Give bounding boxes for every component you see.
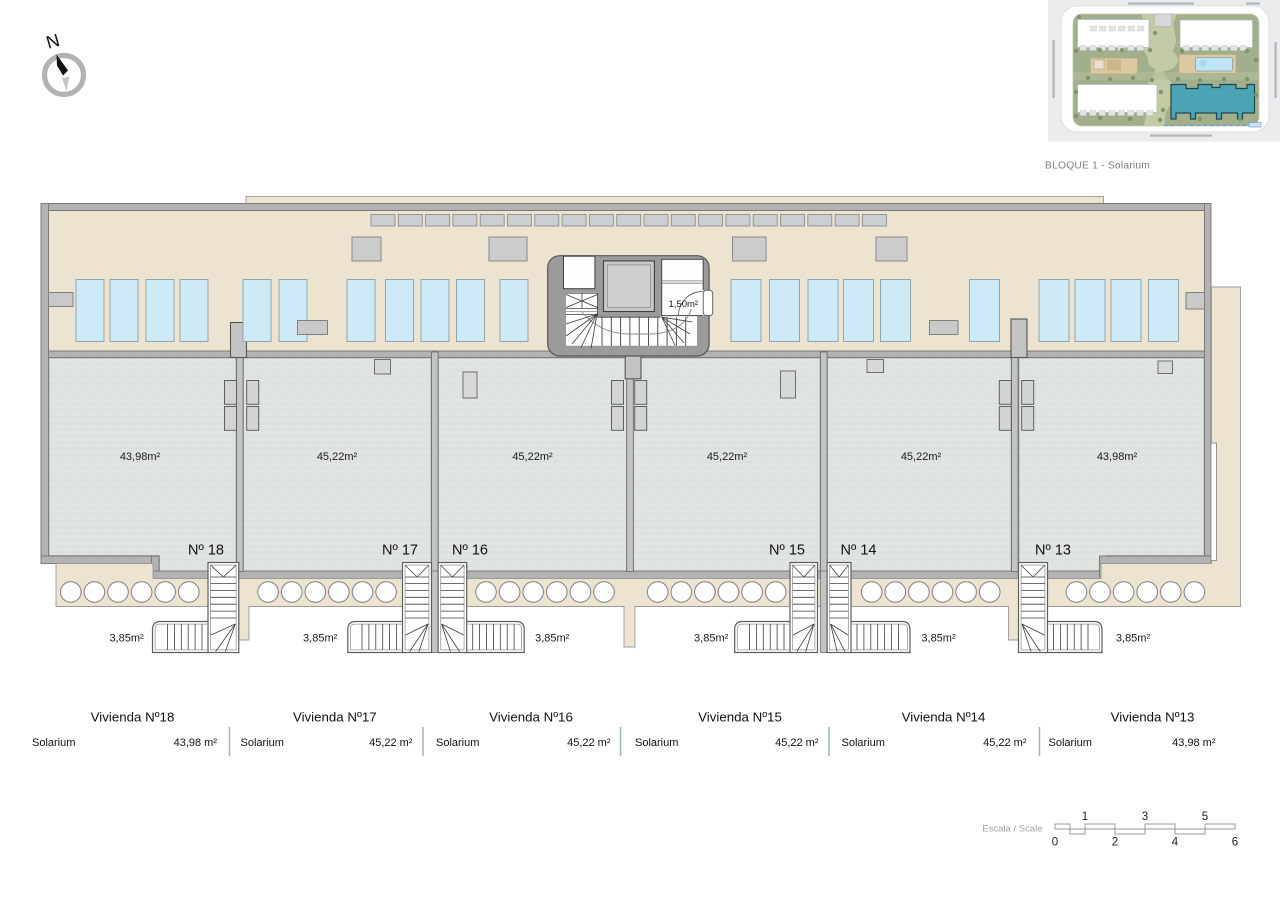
svg-text:6: 6 <box>1232 837 1238 849</box>
svg-text:Nº 18: Nº 18 <box>188 543 224 559</box>
svg-text:Solarium: Solarium <box>32 737 75 749</box>
svg-text:Solarium: Solarium <box>842 737 885 749</box>
svg-text:Nº 16: Nº 16 <box>452 543 488 559</box>
svg-text:Vivienda Nº16: Vivienda Nº16 <box>489 710 573 725</box>
svg-text:45,22m²: 45,22m² <box>317 451 358 463</box>
svg-text:Vivienda Nº18: Vivienda Nº18 <box>91 710 175 725</box>
svg-text:45,22 m²: 45,22 m² <box>983 737 1027 749</box>
svg-text:45,22 m²: 45,22 m² <box>775 737 819 749</box>
svg-text:3,85m²: 3,85m² <box>694 633 729 645</box>
svg-text:BLOQUE 1 - Solarium: BLOQUE 1 - Solarium <box>1045 161 1150 172</box>
svg-text:3,85m²: 3,85m² <box>1116 633 1151 645</box>
svg-text:43,98m²: 43,98m² <box>1097 451 1138 463</box>
svg-text:45,22 m²: 45,22 m² <box>369 737 413 749</box>
svg-text:3,85m²: 3,85m² <box>109 633 144 645</box>
svg-text:4: 4 <box>1172 837 1179 849</box>
svg-text:3: 3 <box>1142 811 1148 823</box>
svg-text:45,22m²: 45,22m² <box>512 451 553 463</box>
svg-text:Nº 13: Nº 13 <box>1035 543 1071 559</box>
svg-text:1,50m²: 1,50m² <box>669 299 699 310</box>
svg-text:Solarium: Solarium <box>241 737 284 749</box>
svg-text:43,98 m²: 43,98 m² <box>1172 737 1216 749</box>
svg-text:5: 5 <box>1202 811 1208 823</box>
svg-text:Nº 15: Nº 15 <box>769 543 805 559</box>
svg-text:45,22m²: 45,22m² <box>901 451 942 463</box>
svg-text:2: 2 <box>1112 837 1118 849</box>
svg-text:Vivienda Nº13: Vivienda Nº13 <box>1111 710 1195 725</box>
svg-text:45,22 m²: 45,22 m² <box>567 737 611 749</box>
svg-text:Solarium: Solarium <box>635 737 678 749</box>
svg-text:Nº 14: Nº 14 <box>841 543 877 559</box>
svg-text:45,22m²: 45,22m² <box>707 451 748 463</box>
svg-text:Vivienda Nº17: Vivienda Nº17 <box>293 710 377 725</box>
svg-text:0: 0 <box>1052 837 1058 849</box>
svg-text:Vivienda Nº14: Vivienda Nº14 <box>902 710 986 725</box>
svg-text:Vivienda Nº15: Vivienda Nº15 <box>698 710 782 725</box>
svg-text:3,85m²: 3,85m² <box>535 633 570 645</box>
svg-text:Solarium: Solarium <box>1049 737 1092 749</box>
svg-text:43,98 m²: 43,98 m² <box>174 737 218 749</box>
svg-text:3,85m²: 3,85m² <box>921 633 956 645</box>
svg-text:Escala / Scale: Escala / Scale <box>982 824 1042 835</box>
svg-text:Solarium: Solarium <box>436 737 479 749</box>
svg-text:3,85m²: 3,85m² <box>303 633 338 645</box>
svg-text:Nº 17: Nº 17 <box>382 543 418 559</box>
svg-text:1: 1 <box>1082 811 1088 823</box>
svg-text:43,98m²: 43,98m² <box>120 451 161 463</box>
